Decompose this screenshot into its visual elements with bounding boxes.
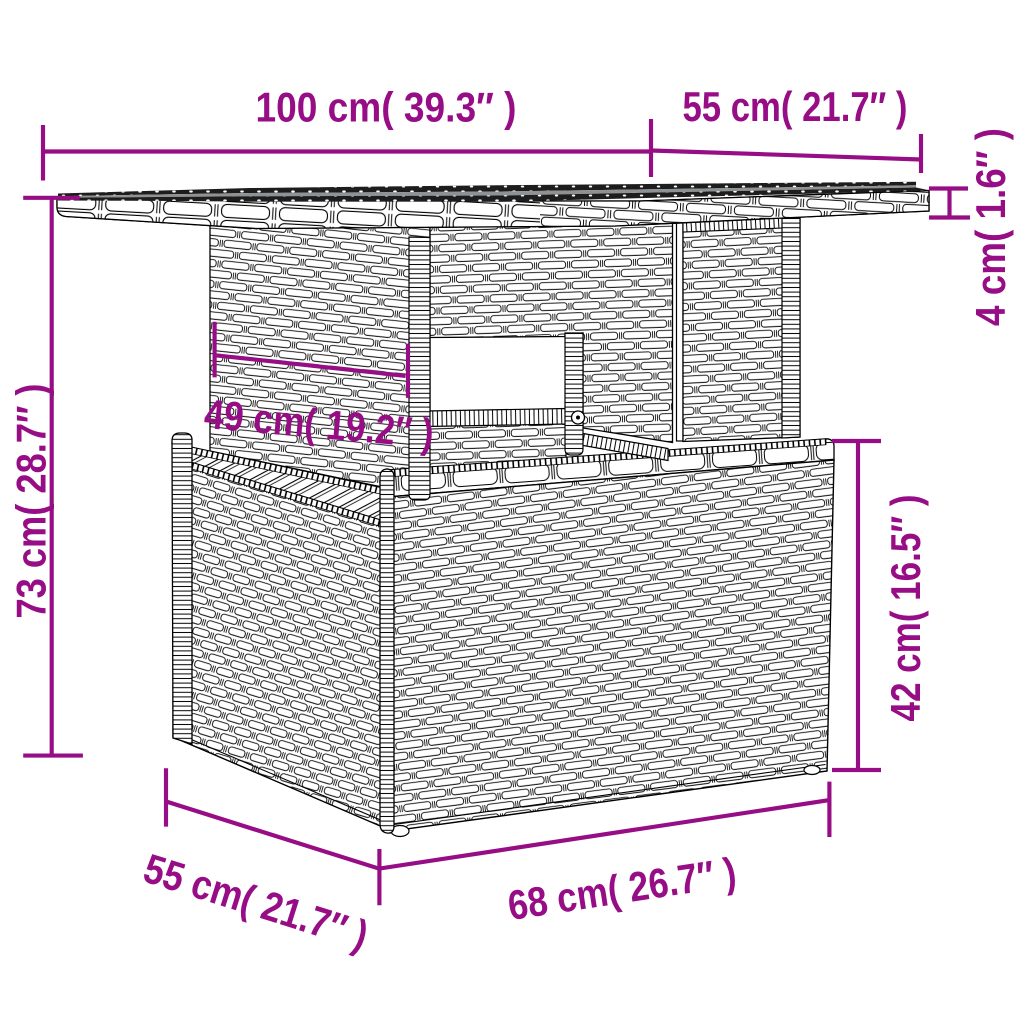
svg-text:4 cm( 1.6″ ): 4 cm( 1.6″ ) [967, 128, 1014, 326]
svg-text:42 cm( 16.5″ ): 42 cm( 16.5″ ) [882, 495, 929, 722]
svg-text:55 cm( 21.7″ ): 55 cm( 21.7″ ) [683, 83, 908, 130]
svg-text:73 cm( 28.7″ ): 73 cm( 28.7″ ) [8, 384, 55, 619]
svg-text:100 cm( 39.3″ ): 100 cm( 39.3″ ) [256, 84, 517, 131]
